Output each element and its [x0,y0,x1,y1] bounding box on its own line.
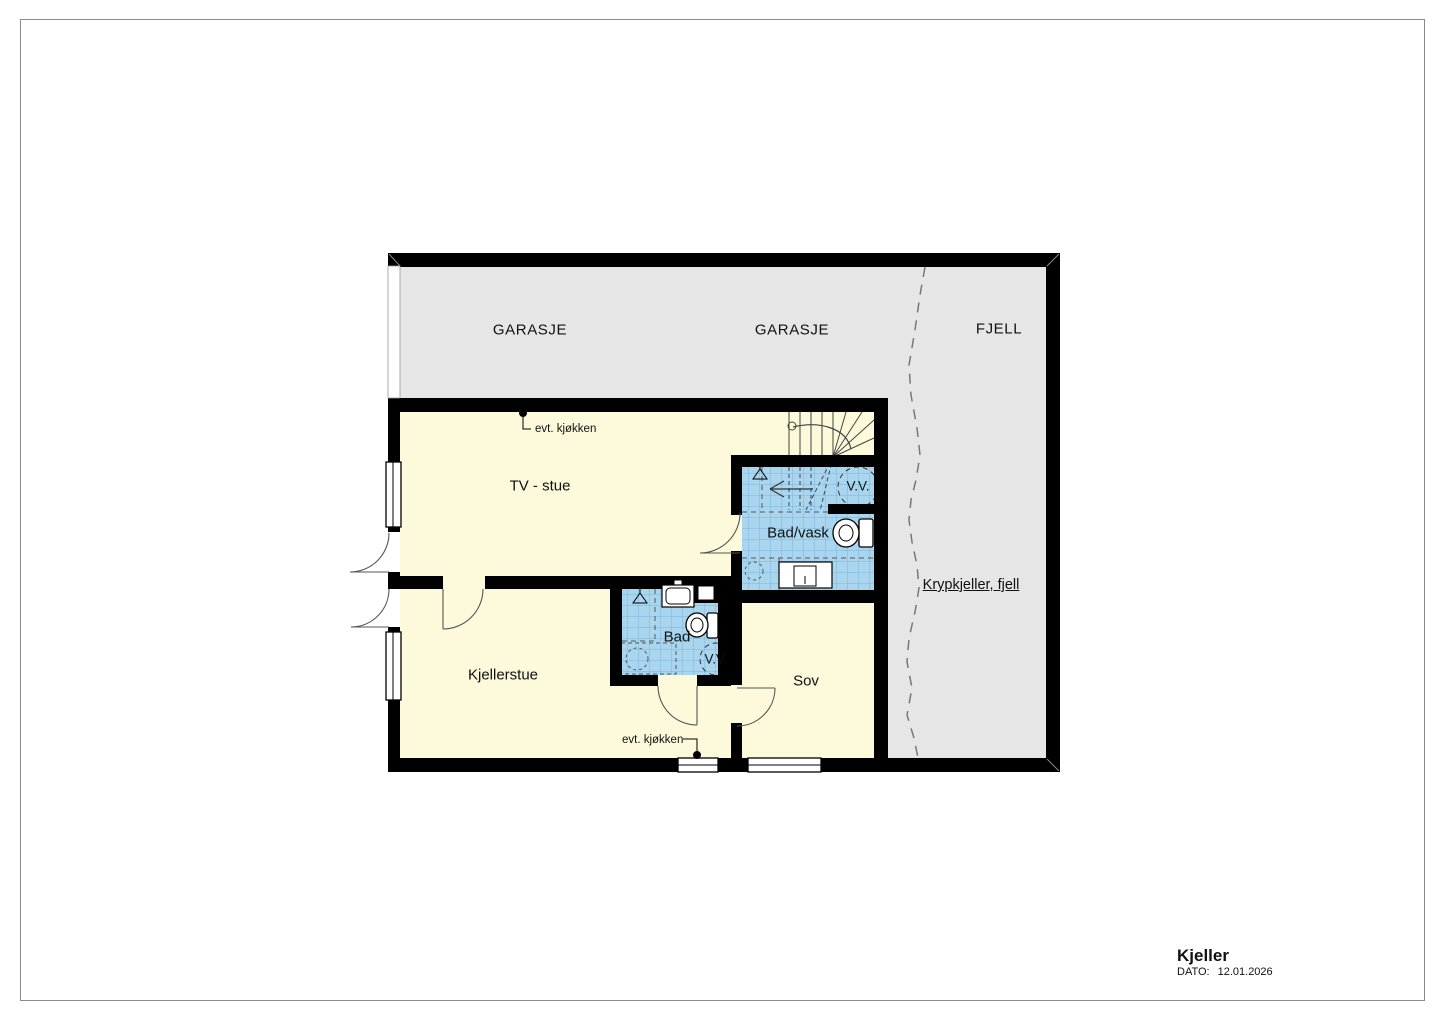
room-label-krypkjeller: Krypkjeller, fjell [923,577,1020,593]
date-label: DATO: [1177,966,1210,978]
wall-vv-stub [828,504,874,514]
room-label-fjell: FJELL [976,321,1022,338]
kitchen-marker-bottom [694,752,701,759]
label-vv-bad: V.V. [704,652,727,667]
label-evt-kjokken-bottom: evt. kjøkken [622,734,683,746]
room-label-garage-left: GARASJE [493,322,567,339]
wall-garage-divider [388,398,888,412]
wall-sov-left [731,603,742,685]
wall-center [400,576,443,589]
date-value: 12.01.2026 [1218,966,1273,978]
floorplan-sheet: GARASJE GARASJE FJELL TV - stue Bad/vask… [0,0,1448,1024]
plan-title: Kjeller [1177,946,1229,966]
room-label-bad: Bad [664,629,691,646]
shaft-box [698,586,714,600]
toilet-bad [686,613,718,638]
door-kjellerstue-exterior [351,589,389,627]
wall-outer-bottom [388,758,1060,772]
wall-outer-right [1046,253,1060,772]
toilet-badvask [833,519,873,547]
wall-badvask-bottom [731,590,874,603]
label-evt-kjokken-top: evt. kjøkken [535,423,596,435]
vanity-badvask [779,562,832,588]
garage-door-opening [388,266,400,398]
plan-date-line: DATO:12.01.2026 [1177,966,1273,978]
wall-bad-right [718,589,731,686]
wall-krypkjeller [874,398,888,758]
door-tvstue-exterior [350,533,389,572]
floorplan-drawing [0,0,1448,1024]
wall-badvask-top [731,455,874,467]
wall-outer-top [388,253,1060,267]
room-label-tv-stue: TV - stue [510,478,571,495]
room-label-garage-right: GARASJE [755,322,829,339]
room-label-sov: Sov [793,673,819,690]
wall-bad-left [610,576,622,686]
room-label-bad-vask: Bad/vask [767,525,829,542]
room-label-kjellerstue: Kjellerstue [468,667,538,684]
label-vv-badvask: V.V. [846,479,869,494]
